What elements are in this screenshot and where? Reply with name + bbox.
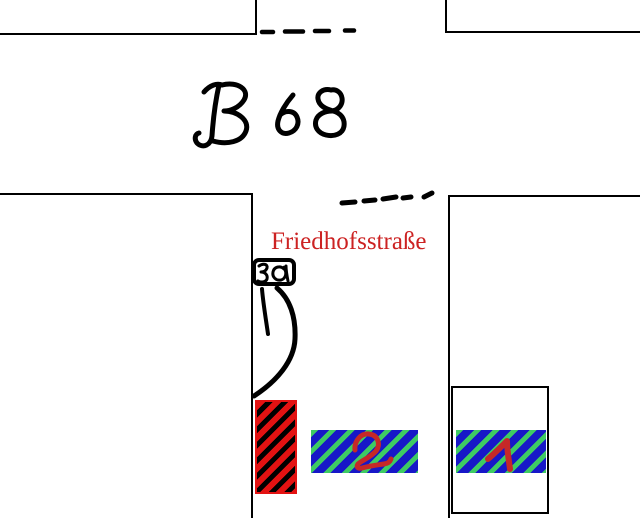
dash-segment (424, 193, 432, 197)
map-canvas: 2 1 Friedhofsstraße (0, 0, 640, 518)
road-number-stroke (315, 90, 344, 136)
dash-segment (403, 197, 411, 198)
area-2-digit (355, 434, 391, 468)
dash-segment (383, 197, 396, 199)
dashed-road-marking-middle (342, 193, 432, 203)
area-1-digit-stroke (488, 441, 510, 469)
dash-segment (342, 202, 355, 203)
dashed-road-marking-top (262, 31, 354, 33)
driveway-curve (254, 288, 295, 396)
area-2-digit-stroke (355, 434, 391, 468)
driveway-stroke-long (254, 288, 295, 396)
hand-drawn-overlay (0, 0, 640, 518)
road-number-stroke (195, 85, 219, 146)
area-1-digit (488, 441, 510, 469)
road-number-stroke (278, 95, 298, 133)
road-number-label (195, 84, 344, 146)
speed-limit-sign (254, 260, 294, 284)
driveway-stroke-short (262, 289, 268, 334)
dash-segment (364, 200, 375, 201)
